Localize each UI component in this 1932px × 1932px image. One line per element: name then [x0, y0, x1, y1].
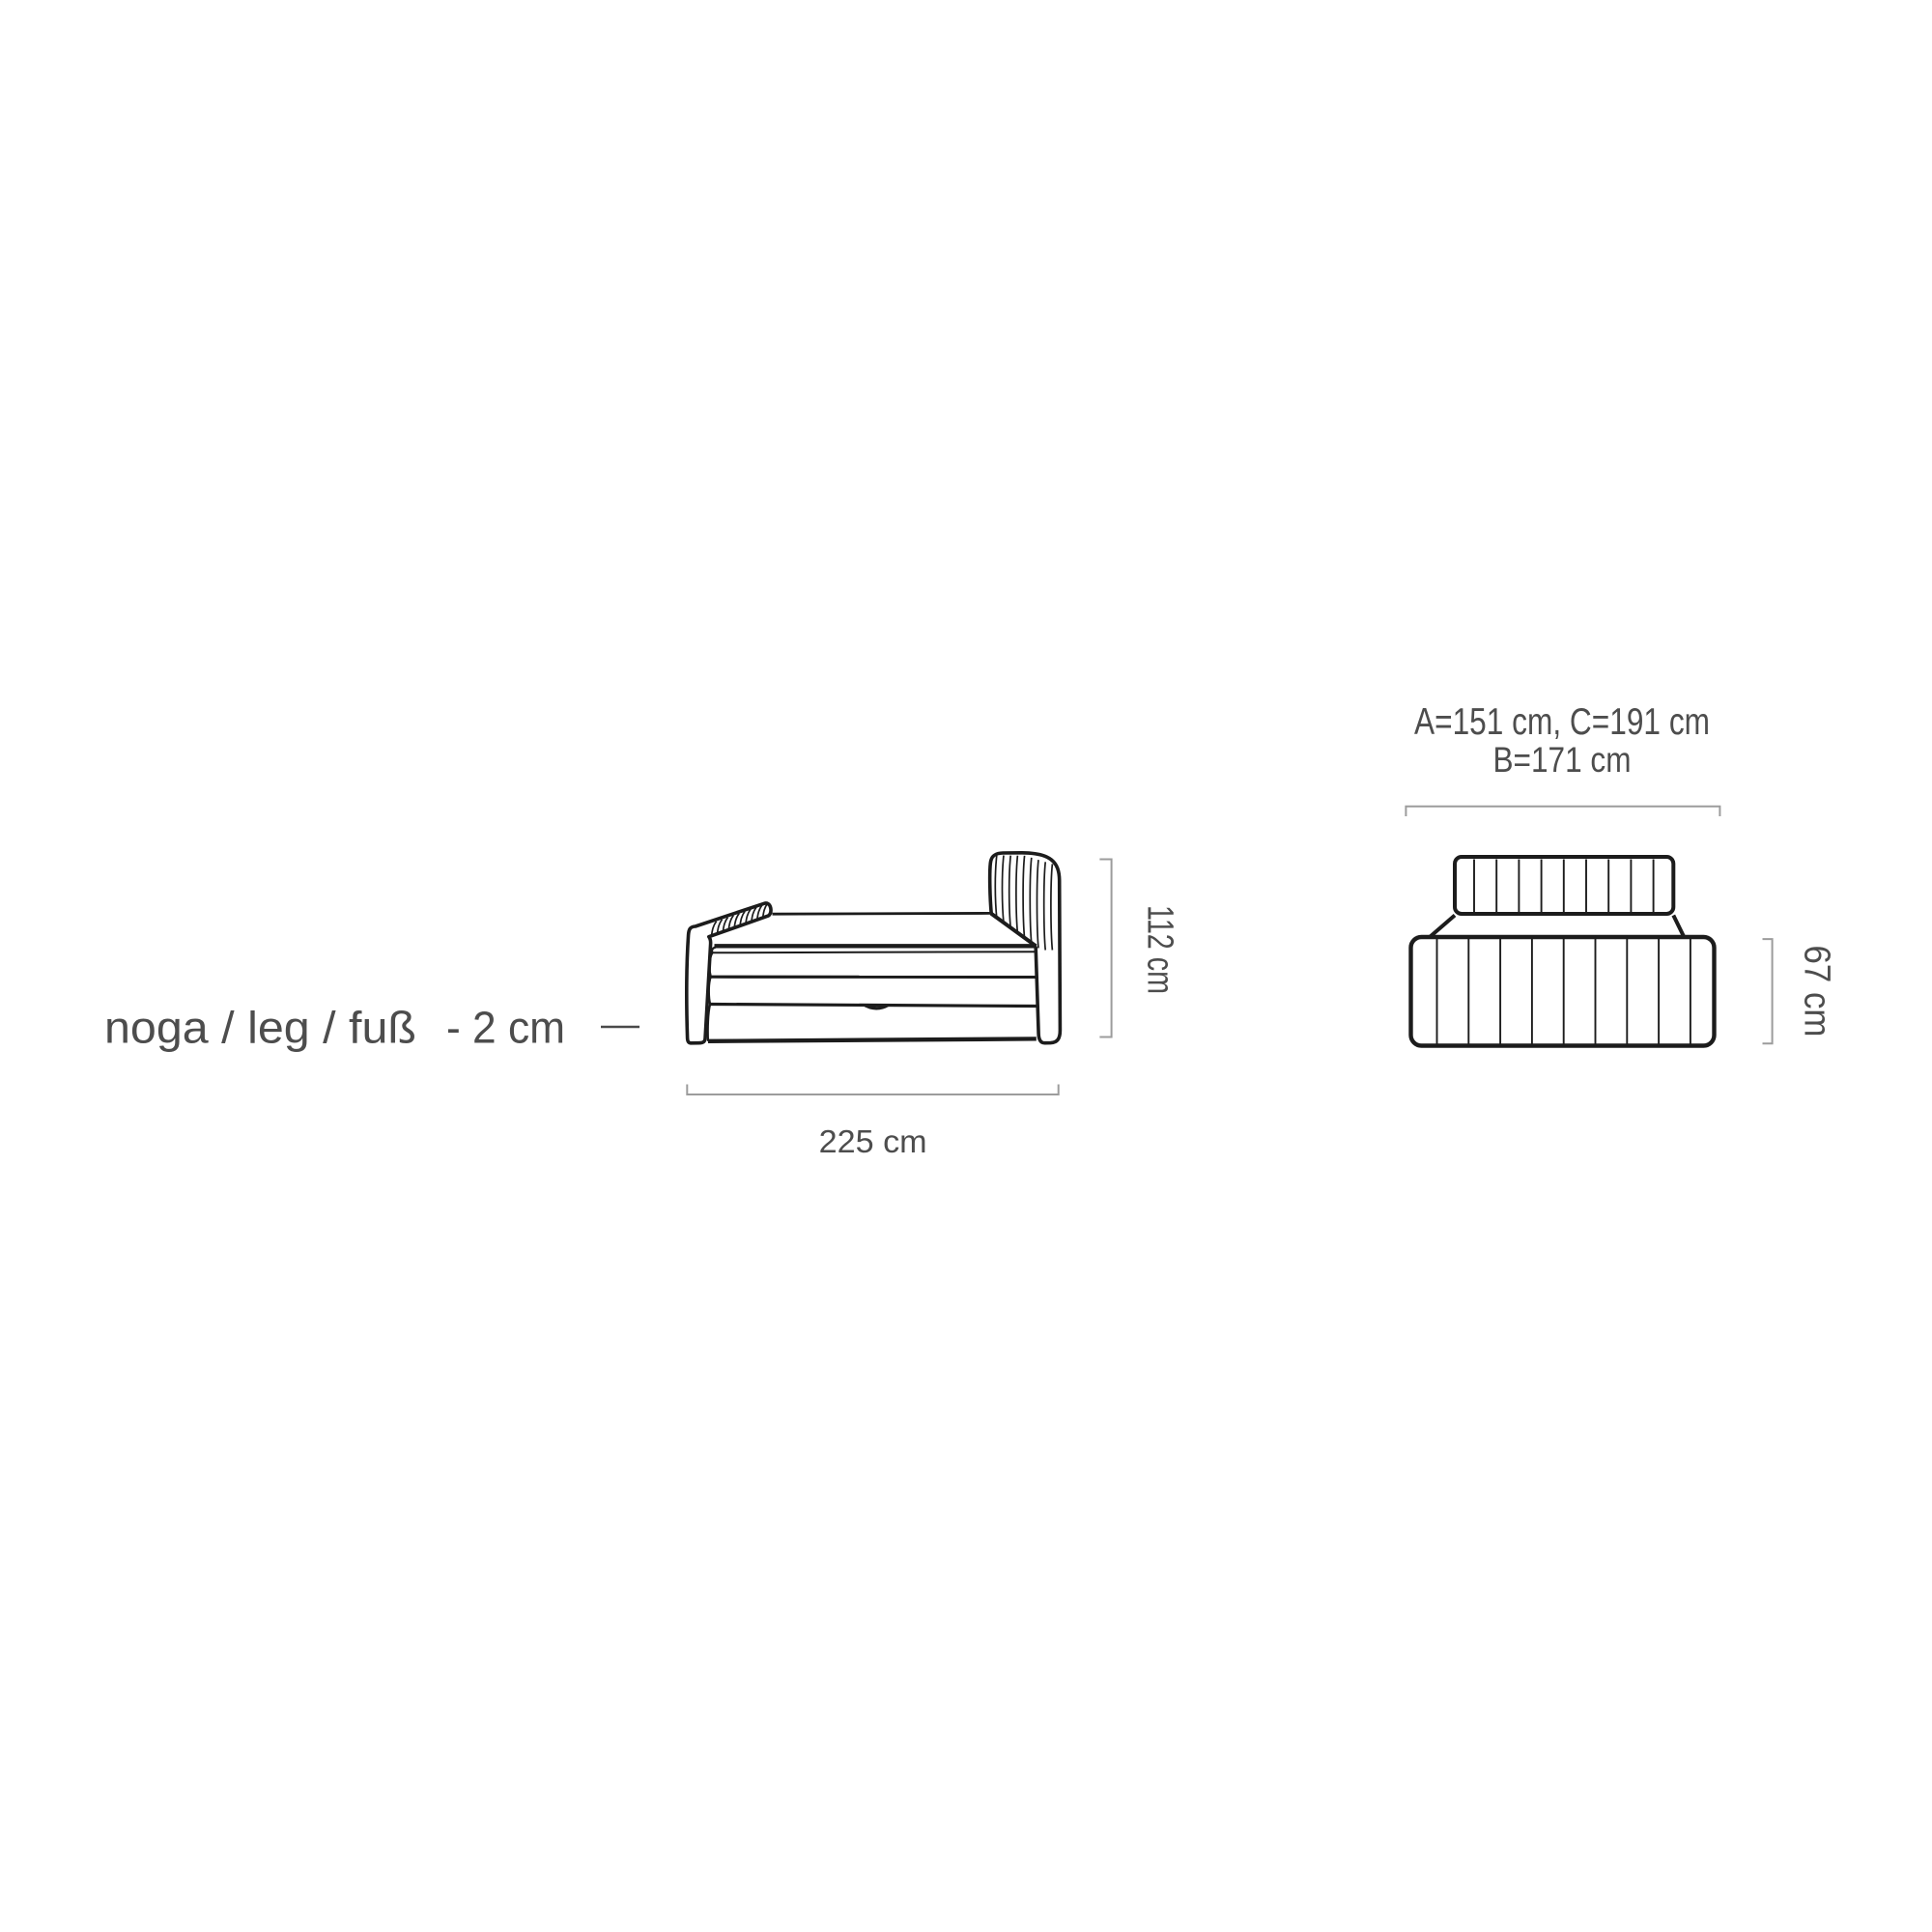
- svg-text:A=151 cm, C=191 cm: A=151 cm, C=191 cm: [1414, 701, 1710, 743]
- svg-text:67 cm: 67 cm: [1797, 946, 1837, 1037]
- svg-text:B=171 cm: B=171 cm: [1493, 740, 1632, 780]
- svg-text:112 cm: 112 cm: [1140, 905, 1180, 994]
- svg-text:- 2 cm: - 2 cm: [446, 1003, 565, 1053]
- svg-text:noga / leg / fuß: noga / leg / fuß: [104, 1003, 416, 1053]
- svg-text:225 cm: 225 cm: [819, 1124, 927, 1160]
